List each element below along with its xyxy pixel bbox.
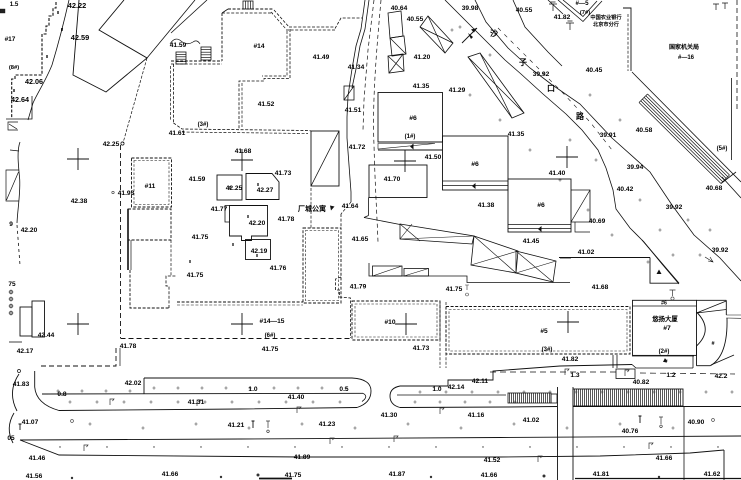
- svg-text:39.91: 39.91: [600, 132, 617, 139]
- svg-text:路: 路: [576, 111, 585, 121]
- svg-text:II: II: [61, 27, 64, 32]
- svg-text:42.02: 42.02: [125, 380, 142, 387]
- svg-text:41.20: 41.20: [414, 54, 431, 61]
- svg-text:41.56: 41.56: [26, 473, 43, 480]
- svg-text:41.31: 41.31: [188, 399, 205, 406]
- svg-text:42.22: 42.22: [68, 1, 87, 10]
- svg-text:41.02: 41.02: [523, 417, 540, 424]
- svg-text:#—16: #—16: [678, 55, 695, 61]
- svg-text:40.82: 40.82: [633, 379, 650, 386]
- svg-text:(8#): (8#): [9, 65, 19, 71]
- svg-text:1.0: 1.0: [432, 386, 441, 393]
- svg-text:39.92: 39.92: [712, 247, 729, 254]
- svg-text:41.40: 41.40: [549, 170, 566, 177]
- svg-text:#: #: [711, 341, 714, 347]
- svg-text:42.19: 42.19: [251, 248, 268, 255]
- svg-text:42.20: 42.20: [21, 227, 38, 234]
- svg-text:42.25: 42.25: [103, 141, 120, 148]
- svg-text:41.45: 41.45: [523, 238, 540, 245]
- svg-text:42.17: 42.17: [17, 348, 34, 355]
- svg-text:沙: 沙: [490, 29, 498, 38]
- svg-text:41.78: 41.78: [120, 343, 137, 350]
- svg-text:41.23: 41.23: [319, 421, 336, 428]
- svg-text:#11: #11: [145, 183, 156, 190]
- svg-text:42.64: 42.64: [11, 95, 29, 104]
- svg-text:(3#): (3#): [198, 122, 209, 128]
- svg-text:41.82: 41.82: [554, 14, 571, 21]
- svg-text:42.59: 42.59: [71, 33, 90, 42]
- svg-text:41.61: 41.61: [169, 130, 186, 137]
- svg-text:41.75: 41.75: [187, 272, 204, 279]
- svg-text:39.98: 39.98: [462, 5, 479, 12]
- svg-text:41.75: 41.75: [446, 286, 463, 293]
- svg-text:0.5: 0.5: [339, 386, 348, 393]
- svg-text:II: II: [13, 88, 16, 93]
- svg-text:41.40: 41.40: [288, 394, 305, 401]
- svg-text:40.55: 40.55: [407, 16, 424, 23]
- svg-text:42.44: 42.44: [38, 332, 55, 339]
- svg-text:41.49: 41.49: [313, 54, 330, 61]
- svg-text:(3#): (3#): [542, 347, 553, 353]
- svg-text:II: II: [232, 242, 234, 247]
- svg-text:41.68: 41.68: [235, 148, 252, 155]
- svg-text:41.38: 41.38: [478, 202, 495, 209]
- svg-text:1.0: 1.0: [248, 386, 257, 393]
- svg-text:#14—15: #14—15: [260, 318, 285, 325]
- svg-text:41.64: 41.64: [342, 203, 359, 210]
- svg-text:1.3: 1.3: [570, 372, 579, 379]
- svg-text:#14: #14: [253, 43, 264, 50]
- svg-text:41.75: 41.75: [192, 234, 209, 241]
- svg-text:II: II: [247, 214, 249, 219]
- svg-text:42.2: 42.2: [715, 373, 728, 380]
- svg-text:#—5: #—5: [575, 0, 589, 7]
- svg-text:41.79: 41.79: [350, 284, 367, 291]
- svg-text:40.76: 40.76: [622, 428, 639, 435]
- svg-text:39.92: 39.92: [533, 71, 550, 78]
- svg-text:41.35: 41.35: [413, 83, 430, 90]
- svg-text:中国农业银行: 中国农业银行: [590, 13, 622, 21]
- svg-text:口: 口: [547, 84, 555, 93]
- svg-text:#6: #6: [471, 161, 479, 168]
- svg-text:II: II: [57, 10, 60, 15]
- svg-text:(7#): (7#): [580, 10, 590, 16]
- svg-text:05: 05: [7, 435, 15, 442]
- svg-text:北京市分行: 北京市分行: [593, 20, 620, 28]
- svg-text:41.02: 41.02: [578, 249, 595, 256]
- svg-text:41.66: 41.66: [162, 471, 179, 478]
- svg-text:41.87: 41.87: [389, 471, 406, 478]
- svg-text:40.42: 40.42: [617, 186, 634, 193]
- svg-text:0.8: 0.8: [57, 391, 66, 398]
- svg-text:40.69: 40.69: [589, 218, 606, 225]
- svg-text:40.45: 40.45: [586, 67, 603, 74]
- svg-text:40.58: 40.58: [636, 127, 653, 134]
- svg-text:#6: #6: [661, 301, 667, 307]
- svg-text:40.90: 40.90: [688, 419, 705, 426]
- svg-text:41.52: 41.52: [258, 101, 275, 108]
- svg-text:41.75: 41.75: [285, 472, 302, 479]
- svg-text:41.59: 41.59: [170, 42, 187, 49]
- svg-text:41.68: 41.68: [592, 284, 609, 291]
- svg-text:(6#): (6#): [265, 333, 276, 339]
- svg-text:41.52: 41.52: [484, 457, 501, 464]
- svg-text:41.35: 41.35: [508, 131, 525, 138]
- svg-text:42.27: 42.27: [257, 187, 274, 194]
- svg-text:40.64: 40.64: [391, 5, 408, 12]
- svg-text:#17: #17: [5, 36, 16, 43]
- svg-text:42.06: 42.06: [25, 77, 43, 86]
- svg-text:41.34: 41.34: [348, 64, 365, 71]
- svg-text:厂城公寓: 厂城公寓: [298, 204, 326, 213]
- svg-text:悠扬大厦: 悠扬大厦: [651, 314, 678, 323]
- svg-text:41.75: 41.75: [262, 346, 279, 353]
- svg-text:42.38: 42.38: [71, 198, 88, 205]
- svg-text:41.93: 41.93: [118, 190, 135, 197]
- svg-text:41.16: 41.16: [468, 412, 485, 419]
- svg-text:#6: #6: [537, 202, 545, 209]
- svg-text:41.89: 41.89: [294, 454, 311, 461]
- svg-text:41.50: 41.50: [425, 154, 442, 161]
- svg-text:II: II: [189, 259, 191, 264]
- svg-text:1.2: 1.2: [666, 372, 675, 379]
- svg-text:#7: #7: [663, 325, 671, 332]
- svg-text:41.77: 41.77: [211, 206, 228, 213]
- svg-text:41.72: 41.72: [349, 144, 366, 151]
- svg-text:42.25: 42.25: [226, 185, 243, 192]
- svg-text:41.83: 41.83: [13, 381, 30, 388]
- svg-text:41.65: 41.65: [352, 236, 369, 243]
- svg-text:国家机关局: 国家机关局: [669, 43, 699, 51]
- svg-text:40.68: 40.68: [706, 185, 723, 192]
- svg-text:41.62: 41.62: [704, 471, 721, 478]
- svg-text:42.20: 42.20: [249, 220, 266, 227]
- svg-text:41.07: 41.07: [22, 419, 39, 426]
- svg-text:(1#): (1#): [405, 134, 416, 140]
- svg-text:子: 子: [519, 58, 527, 67]
- svg-text:42.11: 42.11: [472, 378, 488, 385]
- svg-text:39.94: 39.94: [627, 164, 644, 171]
- svg-text:41.73: 41.73: [275, 170, 292, 177]
- svg-text:(5#): (5#): [717, 146, 728, 152]
- svg-text:41.81: 41.81: [593, 471, 610, 478]
- svg-text:#10: #10: [384, 319, 395, 326]
- svg-text:41.29: 41.29: [449, 87, 466, 94]
- svg-text:41.82: 41.82: [562, 356, 579, 363]
- svg-text:1.5: 1.5: [10, 1, 19, 8]
- svg-text:41.59: 41.59: [189, 176, 206, 183]
- svg-text:41.70: 41.70: [384, 176, 401, 183]
- svg-text:II: II: [46, 54, 49, 59]
- svg-text:9: 9: [9, 221, 13, 228]
- svg-text:42.14: 42.14: [448, 384, 465, 391]
- svg-text:41.78: 41.78: [278, 216, 295, 223]
- svg-text:#6: #6: [409, 115, 417, 122]
- svg-text:41.51: 41.51: [345, 107, 362, 114]
- svg-text:40.55: 40.55: [516, 7, 533, 14]
- svg-text:41.73: 41.73: [413, 345, 430, 352]
- svg-text:41.66: 41.66: [481, 472, 498, 479]
- svg-text:41.66: 41.66: [656, 455, 673, 462]
- svg-text:75: 75: [8, 281, 16, 288]
- svg-text:41.46: 41.46: [29, 455, 46, 462]
- svg-text:41.30: 41.30: [381, 412, 398, 419]
- svg-text:41.76: 41.76: [270, 265, 287, 272]
- svg-text:39.92: 39.92: [666, 204, 683, 211]
- svg-text:(2#): (2#): [659, 349, 670, 355]
- svg-text:#5: #5: [540, 328, 548, 335]
- svg-text:41.21: 41.21: [228, 422, 245, 429]
